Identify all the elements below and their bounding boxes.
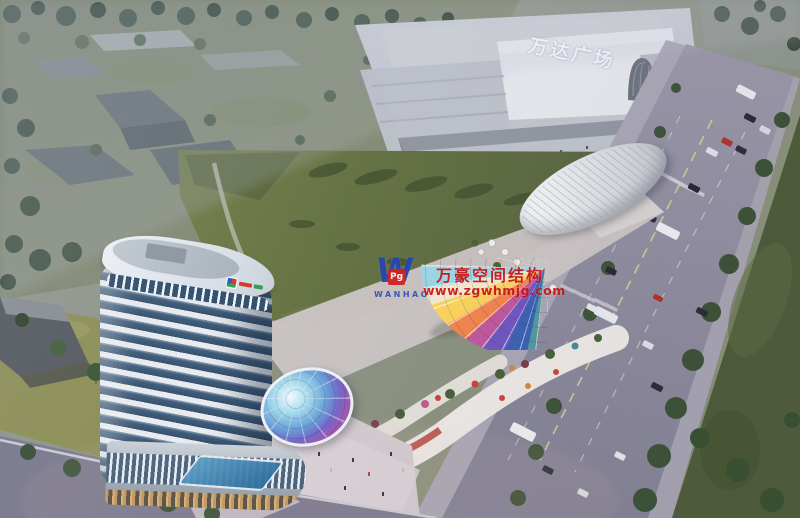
- watermark: W Pg WANHAO 万豪空间结构 www.zgwhmjg.com: [372, 256, 587, 308]
- tower-logo-emblem: [225, 276, 238, 289]
- watermark-website: www.zgwhmjg.com: [423, 283, 566, 298]
- tower-logo-text-red: [239, 282, 252, 288]
- watermark-logo-badge: Pg: [388, 269, 405, 285]
- tower-logo-text-green: [254, 284, 264, 290]
- architectural-rendering: 万达广场 W Pg WANHAO 万豪空间结构 www.zgwhmjg.com: [0, 0, 800, 518]
- watermark-wordmark: WANHAO: [374, 290, 430, 299]
